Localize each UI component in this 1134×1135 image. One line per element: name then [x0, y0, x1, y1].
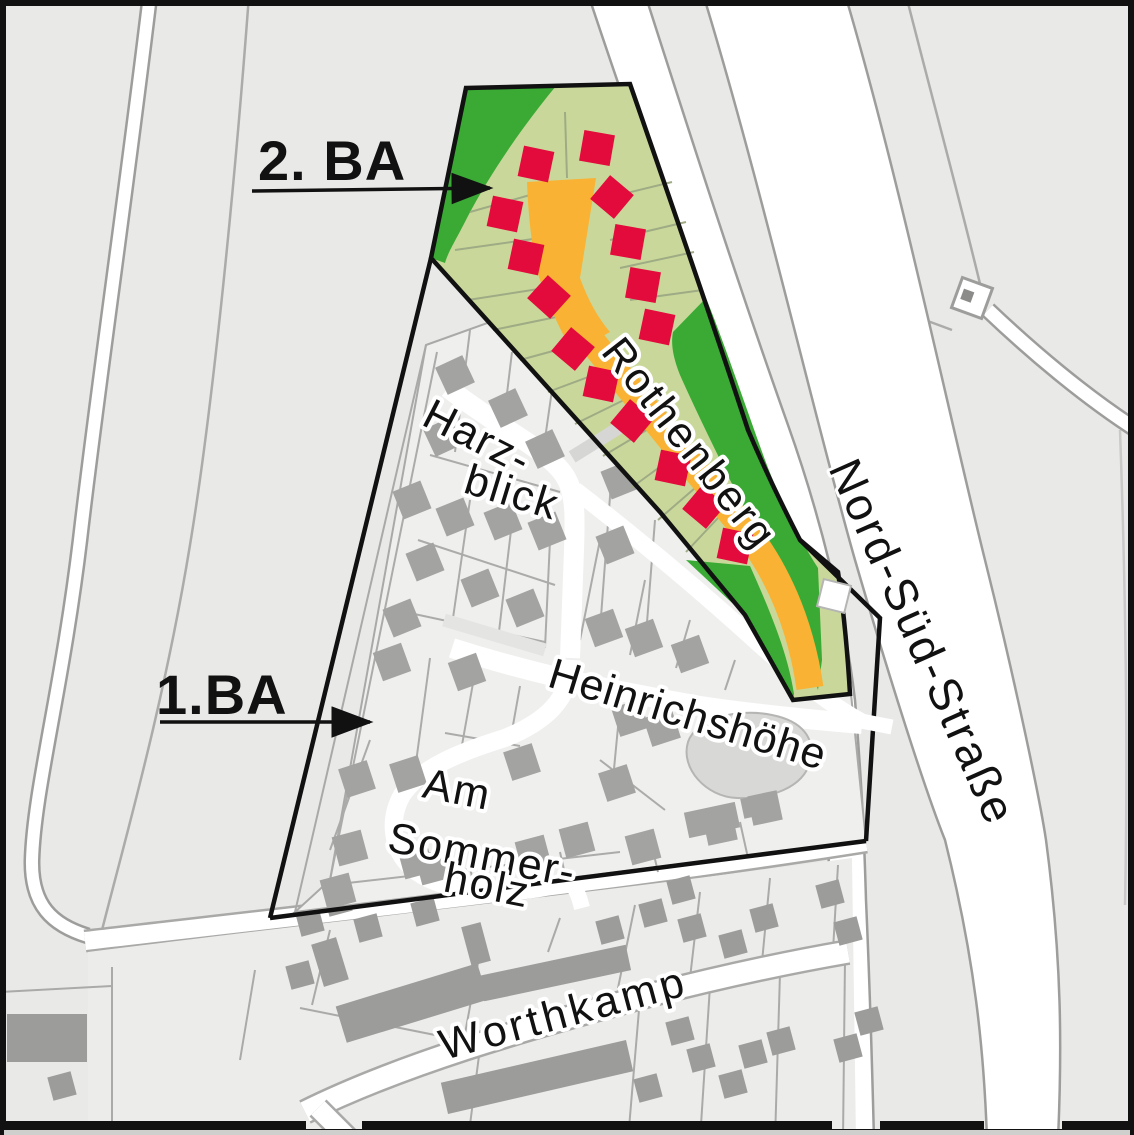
worthkamp-terrace: [7, 1014, 87, 1062]
road-gap-notch: [817, 579, 851, 613]
planned-house: [508, 239, 545, 276]
heinrichshoehe-exit-gap: [856, 720, 892, 727]
map-canvas: 2. BA 1.BA Harz- blick Heinrichshöhe Am …: [0, 0, 1134, 1135]
planned-house: [579, 130, 615, 166]
development-plan-map: 2. BA 1.BA Harz- blick Heinrichshöhe Am …: [0, 0, 1134, 1135]
phase2-label: 2. BA: [258, 129, 406, 192]
planned-house: [639, 309, 676, 346]
planned-house: [487, 196, 524, 233]
planned-house: [610, 224, 646, 260]
planned-house: [518, 146, 555, 183]
phase1-label: 1.BA: [156, 663, 288, 726]
planned-house: [625, 267, 661, 303]
